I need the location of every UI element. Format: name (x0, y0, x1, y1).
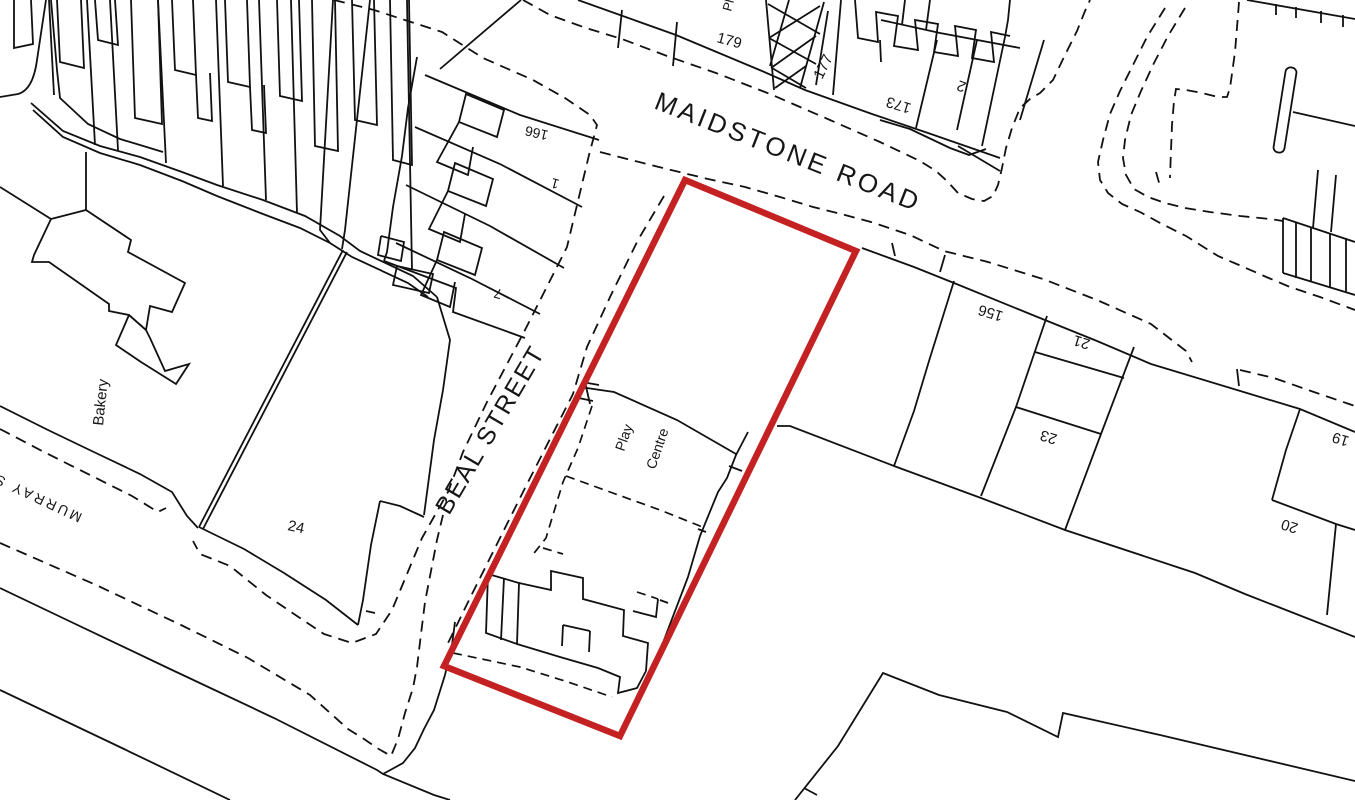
svg-text:24: 24 (286, 517, 306, 537)
